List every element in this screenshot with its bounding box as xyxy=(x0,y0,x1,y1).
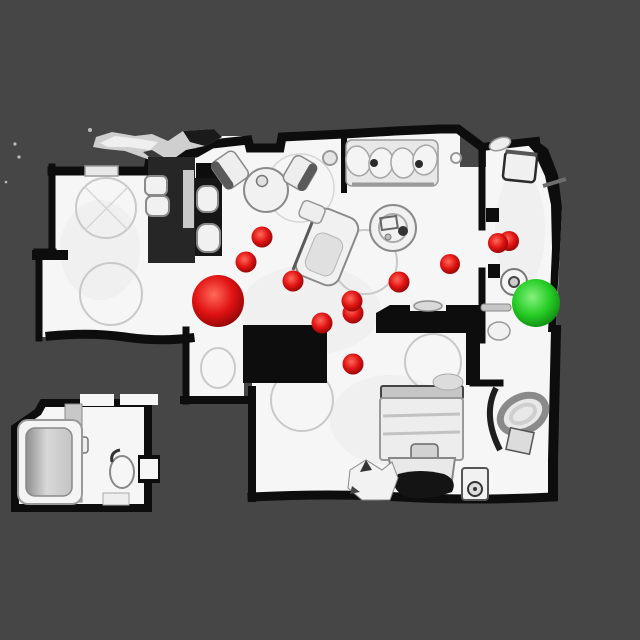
small-red-sphere-marker xyxy=(343,354,364,375)
small-red-sphere-marker xyxy=(389,272,410,293)
small-red-sphere-marker xyxy=(440,254,460,274)
small-red-sphere-marker xyxy=(252,227,273,248)
shelf xyxy=(85,166,118,176)
clothes-pile xyxy=(348,460,398,500)
wall-niche-sink xyxy=(410,300,446,311)
top-down-scene-canvas[interactable] xyxy=(0,0,640,640)
3d-scene-viewport[interactable] xyxy=(0,0,640,640)
small-red-sphere-marker xyxy=(312,313,333,334)
green-sphere-marker xyxy=(512,279,560,327)
toilet xyxy=(110,456,134,488)
small-red-sphere-marker xyxy=(236,252,257,273)
small-red-sphere-marker xyxy=(283,271,304,292)
large-red-sphere-marker xyxy=(192,275,244,327)
coffee-table xyxy=(370,205,416,251)
small-red-sphere-marker xyxy=(488,233,508,253)
small-red-sphere-marker xyxy=(342,291,363,312)
